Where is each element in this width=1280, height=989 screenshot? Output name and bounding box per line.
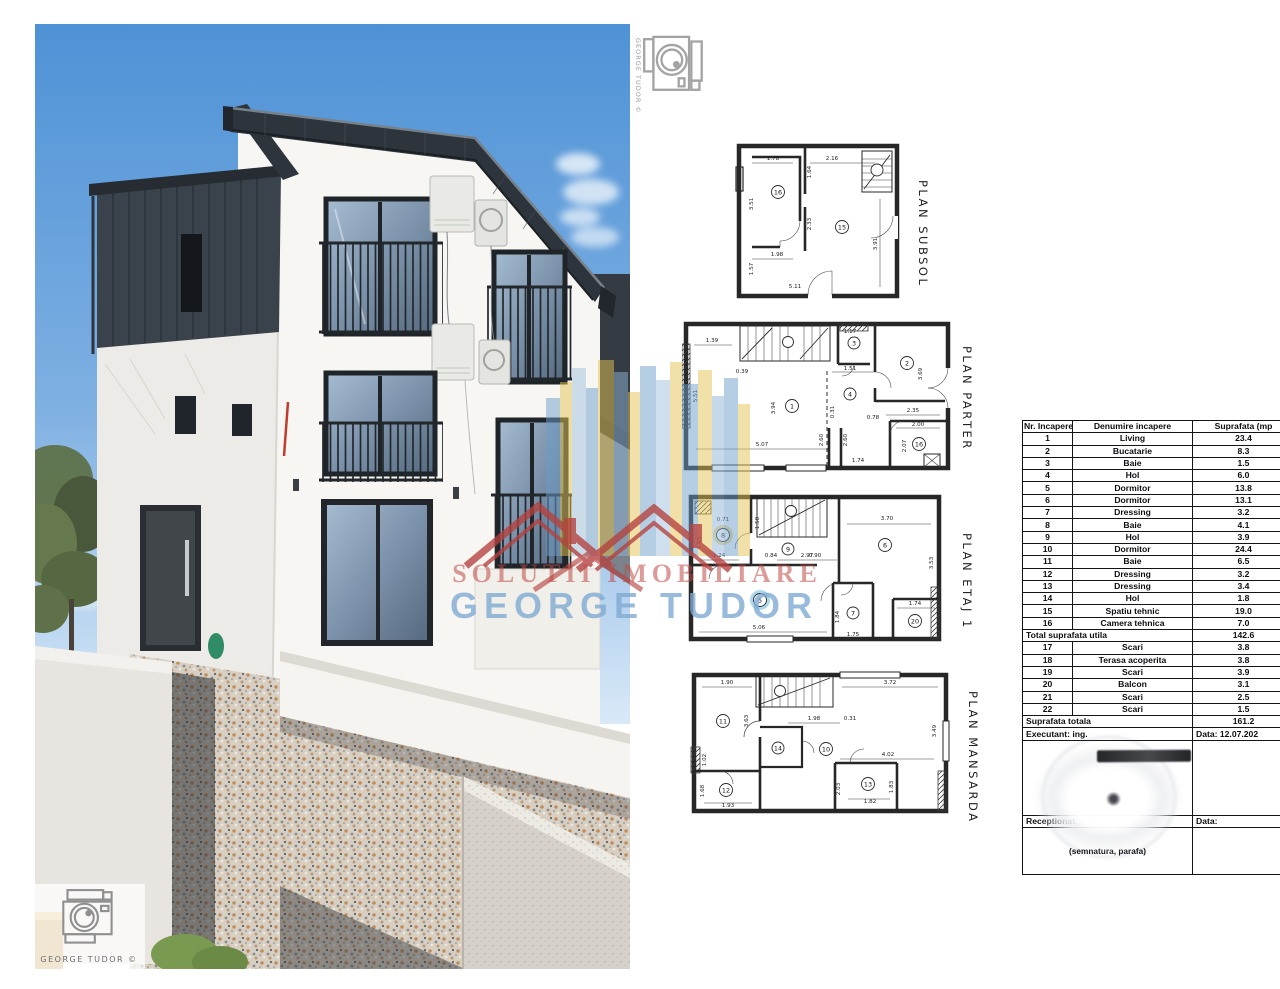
stairs: [862, 151, 892, 192]
room-name: Dormitor: [1073, 494, 1193, 506]
svg-text:4: 4: [848, 391, 852, 399]
room-number: 10: [1023, 543, 1073, 555]
room-number: 2: [1023, 445, 1073, 457]
room-number: 21: [1023, 691, 1073, 703]
svg-text:15: 15: [838, 224, 846, 232]
svg-text:2.60: 2.60: [843, 433, 849, 446]
room-name: Scari: [1073, 703, 1193, 715]
svg-text:1.17: 1.17: [844, 329, 857, 335]
table-row: 11Baie6.5: [1023, 556, 1280, 568]
svg-text:1.24: 1.24: [713, 553, 726, 559]
small-window: [175, 396, 196, 434]
svg-text:1.39: 1.39: [706, 338, 719, 344]
svg-text:3.63: 3.63: [744, 714, 750, 727]
svg-text:3.72: 3.72: [884, 680, 896, 686]
table-row: 13Dressing3.4: [1023, 580, 1280, 592]
room-area: 1.8: [1193, 593, 1280, 605]
svg-text:0.39: 0.39: [736, 369, 749, 375]
table-row: 5Dormitor13.8: [1023, 482, 1280, 494]
receptionat-date: Data:: [1193, 815, 1280, 827]
room-name: Hol: [1073, 470, 1193, 482]
room-area: 13.1: [1193, 494, 1280, 506]
room-number: 16: [1023, 617, 1073, 629]
room-name: Scari: [1073, 691, 1193, 703]
svg-text:12: 12: [722, 787, 730, 795]
room-number: 1: [1023, 433, 1073, 445]
table-row: 4Hol6.0: [1023, 470, 1280, 482]
room-number: 13: [1023, 580, 1073, 592]
svg-text:1.82: 1.82: [864, 799, 876, 805]
plan-parter: 1 2 3 4 16 1.39 5.51 0.39 3.94 5.07 1.51…: [682, 316, 956, 476]
table-row: Nr. IncapereDenumire incapereSuprafata (…: [1023, 421, 1280, 433]
camera-watermark-top: GEORGE TUDOR ©: [628, 10, 710, 130]
svg-text:6: 6: [883, 542, 887, 550]
room-number: 14: [1023, 593, 1073, 605]
room-area: 1.5: [1193, 703, 1280, 715]
svg-text:1.02: 1.02: [702, 754, 708, 766]
plan-mansarda: 11 14 10 12 13 1.90 3.72 3.63 3.49 1.98 …: [690, 663, 958, 823]
column-header: Denumire incapere: [1073, 421, 1193, 433]
svg-text:3.91: 3.91: [873, 237, 879, 250]
svg-text:1.74: 1.74: [909, 601, 922, 607]
room-number: 9: [1023, 531, 1073, 543]
svg-text:5.51: 5.51: [693, 389, 699, 402]
room-area: 23.4: [1193, 433, 1280, 445]
room-number: 19: [1023, 666, 1073, 678]
table-row: 17Scari3.8: [1023, 642, 1280, 654]
svg-text:3.70: 3.70: [881, 516, 894, 522]
svg-text:1: 1: [790, 403, 794, 411]
svg-text:20: 20: [911, 618, 919, 626]
table-row: Suprafata totala161.2: [1023, 716, 1280, 728]
stairs: [757, 497, 827, 537]
total-utila-label: Total suprafata utila: [1023, 630, 1193, 642]
room-number: 6: [1023, 494, 1073, 506]
svg-text:2.33: 2.33: [807, 217, 813, 230]
plan-parter-label: PLAN PARTER: [960, 346, 974, 451]
svg-text:2.07: 2.07: [902, 439, 908, 452]
total-value: 161.2: [1193, 716, 1280, 728]
svg-text:3: 3: [852, 340, 856, 348]
table-row: 18Terasa acoperita3.8: [1023, 654, 1280, 666]
svg-text:3.49: 3.49: [932, 724, 938, 737]
svg-text:9: 9: [786, 546, 790, 554]
room-number: 3: [1023, 457, 1073, 469]
room-area: 3.2: [1193, 568, 1280, 580]
room-number: 4: [1023, 470, 1073, 482]
svg-text:5.11: 5.11: [789, 284, 802, 290]
svg-text:10: 10: [822, 746, 830, 754]
plan-etaj1-label: PLAN ETAJ 1: [960, 533, 974, 630]
stamp-ink-dot: [1106, 792, 1121, 806]
executant-name-redaction: [1097, 750, 1191, 763]
balcony-railing: [319, 242, 443, 334]
table-row: 12Dressing3.2: [1023, 568, 1280, 580]
room-area: 3.8: [1193, 642, 1280, 654]
room-name: Terasa acoperita: [1073, 654, 1193, 666]
svg-text:1.75: 1.75: [847, 632, 860, 638]
room-name: Dormitor: [1073, 482, 1193, 494]
svg-text:1.78: 1.78: [767, 156, 780, 162]
room-area: 6.5: [1193, 556, 1280, 568]
svg-text:1.98: 1.98: [771, 252, 784, 258]
svg-text:3.53: 3.53: [929, 556, 935, 569]
room-name: Hol: [1073, 531, 1193, 543]
svg-text:1.83: 1.83: [889, 780, 895, 793]
svg-text:1.57: 1.57: [749, 262, 755, 275]
camera-credit: GEORGE TUDOR ©: [634, 38, 642, 114]
svg-text:16: 16: [915, 441, 923, 449]
svg-text:2.00: 2.00: [912, 422, 925, 428]
room-name: Baie: [1073, 556, 1193, 568]
svg-text:0.84: 0.84: [765, 553, 778, 559]
room-name: Hol: [1073, 593, 1193, 605]
room-name: Balcon: [1073, 679, 1193, 691]
table-row: Executant: ing.Data: 12.07.202: [1023, 728, 1280, 740]
table-row: 6Dormitor13.1: [1023, 494, 1280, 506]
svg-text:1.51: 1.51: [844, 366, 857, 372]
svg-text:13: 13: [864, 781, 872, 789]
room-number: 22: [1023, 703, 1073, 715]
stairs: [740, 326, 830, 361]
room-area: 3.2: [1193, 507, 1280, 519]
room-area: 24.4: [1193, 543, 1280, 555]
table-row: 7Dressing3.2: [1023, 507, 1280, 519]
svg-text:11: 11: [719, 718, 727, 726]
svg-text:1.74: 1.74: [852, 458, 865, 464]
room-area: 4.1: [1193, 519, 1280, 531]
stairs: [756, 675, 833, 707]
svg-text:3.69: 3.69: [918, 367, 924, 380]
svg-text:5.06: 5.06: [753, 625, 766, 631]
room-area: 3.1: [1193, 679, 1280, 691]
table-row: 3Baie1.5: [1023, 457, 1280, 469]
room-number: 17: [1023, 642, 1073, 654]
table-row: 14Hol1.8: [1023, 593, 1280, 605]
svg-text:8: 8: [721, 532, 725, 540]
plan-subsol-label: PLAN SUBSOL: [916, 180, 930, 287]
mansard-box: [89, 165, 285, 354]
svg-text:5.07: 5.07: [756, 442, 769, 448]
camera-credit: GEORGE TUDOR ©: [40, 955, 137, 964]
table-row: 8Baie4.1: [1023, 519, 1280, 531]
svg-text:1.98: 1.98: [808, 716, 821, 722]
room-area: 6.0: [1193, 470, 1280, 482]
table-row: 2Bucatarie8.3: [1023, 445, 1280, 457]
column-header: Suprafata (mp: [1193, 421, 1280, 433]
room-number: 7: [1023, 507, 1073, 519]
svg-text:2: 2: [905, 360, 909, 368]
room-area: 13.8: [1193, 482, 1280, 494]
column-header: Nr. Incapere: [1023, 421, 1073, 433]
room-area: 1.5: [1193, 457, 1280, 469]
wall-lamp: [293, 479, 299, 491]
room-area: 3.9: [1193, 666, 1280, 678]
svg-text:0.78: 0.78: [867, 415, 880, 421]
svg-text:2.97: 2.97: [801, 553, 814, 559]
empty-cell: [1193, 828, 1280, 875]
executant-date: Data: 12.07.202: [1193, 728, 1280, 740]
terrace-parapet: [475, 569, 600, 669]
room-name: Dressing: [1073, 580, 1193, 592]
table-row: 20Balcon3.1: [1023, 679, 1280, 691]
svg-text:1.90: 1.90: [721, 680, 734, 686]
room-name: Scari: [1073, 642, 1193, 654]
room-name: Bucatarie: [1073, 445, 1193, 457]
table-row: 10Dormitor24.4: [1023, 543, 1280, 555]
total-utila-value: 142.6: [1193, 630, 1280, 642]
real-estate-listing-page: GEORGE TUDOR © GEORGE TUDOR ©: [0, 0, 1280, 989]
room-name: Dressing: [1073, 507, 1193, 519]
svg-text:1.64: 1.64: [807, 165, 813, 178]
svg-text:3.51: 3.51: [749, 197, 755, 210]
table-row: 1Living23.4: [1023, 433, 1280, 445]
room-area: 3.4: [1193, 580, 1280, 592]
table-row: 19Scari3.9: [1023, 666, 1280, 678]
svg-text:16: 16: [774, 189, 782, 197]
svg-text:0.71: 0.71: [717, 517, 730, 523]
svg-text:2.60: 2.60: [819, 433, 825, 446]
empty-cell: [1193, 740, 1280, 815]
svg-text:2.35: 2.35: [907, 408, 920, 414]
room-number: 8: [1023, 519, 1073, 531]
table-row: 9Hol3.9: [1023, 531, 1280, 543]
room-area: 7.0: [1193, 617, 1280, 629]
camera-watermark-bottom: GEORGE TUDOR ©: [33, 884, 145, 970]
camera-icon: [644, 37, 702, 90]
table-row: Total suprafata utila142.6: [1023, 630, 1280, 642]
house-photo: [35, 24, 630, 969]
room-name: Camera tehnica: [1073, 617, 1193, 629]
svg-text:1.84: 1.84: [835, 610, 841, 623]
total-label: Suprafata totala: [1023, 716, 1193, 728]
room-number: 12: [1023, 568, 1073, 580]
plan-mansarda-label: PLAN MANSARDA: [966, 691, 980, 824]
room-name: Spatiu tehnic: [1073, 605, 1193, 617]
svg-text:1.63: 1.63: [697, 536, 703, 549]
table-row: 22Scari1.5: [1023, 703, 1280, 715]
table-row: 16Camera tehnica7.0: [1023, 617, 1280, 629]
svg-text:2.16: 2.16: [826, 156, 839, 162]
svg-text:2.03: 2.03: [836, 782, 842, 795]
room-name: Baie: [1073, 519, 1193, 531]
svg-text:3.94: 3.94: [771, 401, 777, 414]
room-number: 18: [1023, 654, 1073, 666]
svg-text:4.02: 4.02: [882, 752, 894, 758]
room-number: 5: [1023, 482, 1073, 494]
room-number: 20: [1023, 679, 1073, 691]
svg-text:7: 7: [851, 610, 855, 618]
table-row: 15Spatiu tehnic19.0: [1023, 605, 1280, 617]
wall-lamp: [453, 487, 459, 499]
plan-etaj1: 8 9 6 5 7 20 0.71 1.63 1.58 0.84 0.90 1.…: [687, 487, 947, 649]
room-name: Dormitor: [1073, 543, 1193, 555]
svg-text:14: 14: [774, 745, 782, 753]
room-name: Living: [1073, 433, 1193, 445]
room-name: Scari: [1073, 666, 1193, 678]
room-area: 8.3: [1193, 445, 1280, 457]
svg-text:1.68: 1.68: [700, 784, 706, 797]
watering-can: [208, 633, 224, 659]
room-area: 3.8: [1193, 654, 1280, 666]
room-number: 15: [1023, 605, 1073, 617]
table-row: 21Scari2.5: [1023, 691, 1280, 703]
room-area: 19.0: [1193, 605, 1280, 617]
plan-subsol: 16 15 1.78 2.16 1.64 3.51 2.33 3.91 1.98…: [735, 139, 903, 303]
room-area: 3.9: [1193, 531, 1280, 543]
room-number: 11: [1023, 556, 1073, 568]
mansard-window: [181, 234, 202, 312]
svg-text:5: 5: [758, 597, 762, 605]
svg-text:1.93: 1.93: [722, 803, 735, 809]
svg-text:1.58: 1.58: [755, 516, 761, 529]
svg-text:0.31: 0.31: [844, 716, 857, 722]
room-area: 2.5: [1193, 691, 1280, 703]
svg-text:0.31: 0.31: [830, 405, 836, 418]
room-name: Dressing: [1073, 568, 1193, 580]
room-name: Baie: [1073, 457, 1193, 469]
small-window: [232, 404, 252, 436]
